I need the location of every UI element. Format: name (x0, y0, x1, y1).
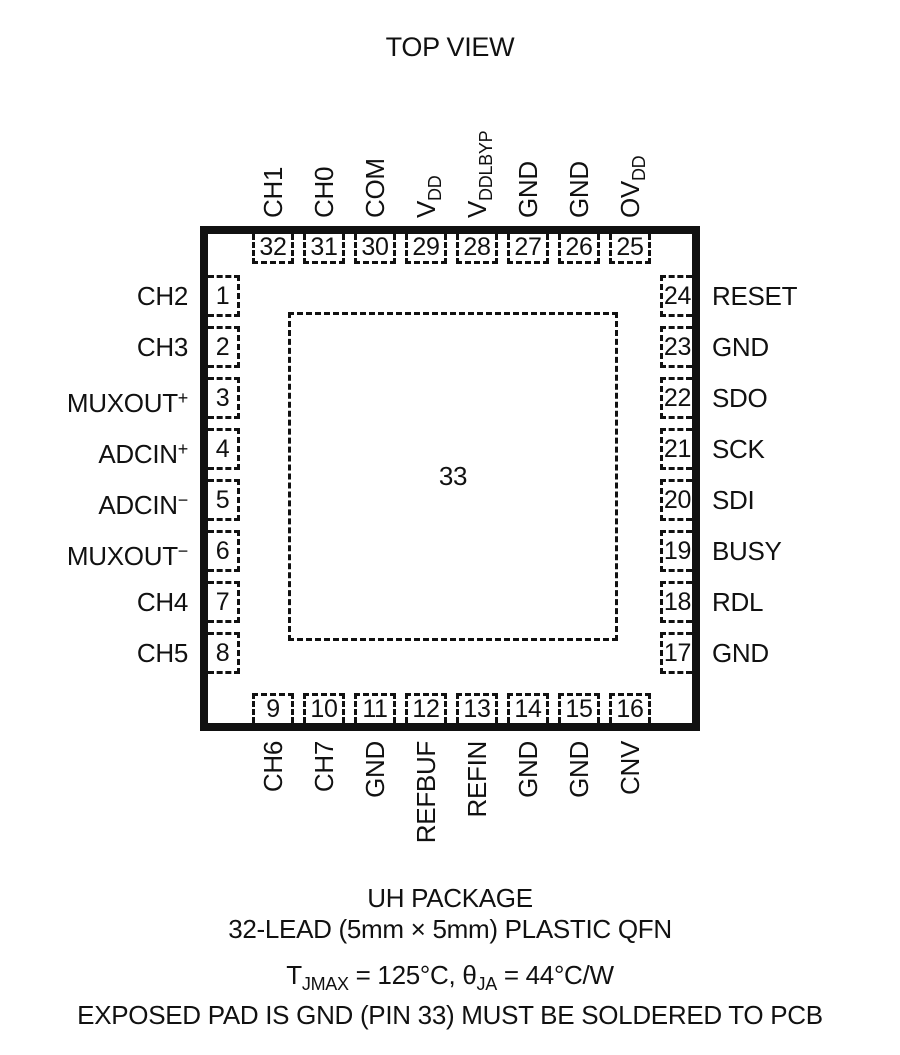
pin-label-text: RDL (712, 587, 763, 617)
pin-19-label: BUSY (712, 538, 782, 564)
pin-number: 3 (216, 386, 230, 411)
pin-7-pad: 7 (208, 581, 240, 623)
pin-7-label: CH4 (137, 589, 188, 615)
pin-15-label: GND (564, 741, 594, 891)
pin-9-label: CH6 (258, 741, 288, 891)
qfn-package-outline: 33 3231302928272625910111213141516123456… (200, 226, 700, 731)
pin-label-text: GND (513, 741, 543, 798)
pin-8-pad: 8 (208, 632, 240, 674)
thermal-text: = 125°C, θ (349, 960, 477, 990)
pin-6-pad: 6 (208, 530, 240, 572)
pin-number: 25 (616, 235, 643, 260)
pin-number: 29 (412, 235, 439, 260)
pin-number: 12 (412, 697, 439, 722)
pin-32-label: CH1 (258, 68, 288, 218)
pin-label-text: CH4 (137, 587, 188, 617)
pin-number: 14 (514, 697, 541, 722)
pin-23-pad: 23 (660, 326, 692, 368)
pin-label-text: ADCIN (98, 439, 177, 469)
exposed-pad-number: 33 (439, 461, 467, 492)
pin-label-text: V (462, 201, 492, 218)
pin-25-label: OVDD (615, 68, 645, 218)
pin-label-subscript: DD (425, 176, 445, 201)
pin-number: 24 (664, 284, 691, 309)
pin-1-label: CH2 (137, 283, 188, 309)
pin-label-subscript: DDLBYP (476, 131, 496, 201)
pin-10-label: CH7 (309, 741, 339, 891)
pin-11-label: GND (360, 741, 390, 891)
qfn-pinout-figure: TOP VIEW 33 3231302928272625910111213141… (0, 0, 900, 1055)
pin-17-label: GND (712, 640, 769, 666)
pin-3-pad: 3 (208, 377, 240, 419)
pin-label-text: BUSY (712, 536, 782, 566)
thermal-specs: TJMAX = 125°C, θJA = 44°C/W (0, 960, 900, 1000)
pin-label-subscript: DD (629, 156, 649, 181)
pin-10-pad: 10 (303, 693, 345, 723)
pin-18-pad: 18 (660, 581, 692, 623)
pin-label-text: REFBUF (411, 741, 441, 843)
pin-number: 16 (616, 697, 643, 722)
pin-9-pad: 9 (252, 693, 294, 723)
pin-label-text: V (411, 201, 441, 218)
pin-22-pad: 22 (660, 377, 692, 419)
pin-number: 32 (259, 235, 286, 260)
pin-label-text: CH3 (137, 332, 188, 362)
pin-number: 1 (216, 284, 230, 309)
pin-label-text: GND (712, 638, 769, 668)
pin-label-text: REFIN (462, 741, 492, 818)
pin-21-label: SCK (712, 436, 765, 462)
pin-4-label: ADCIN+ (98, 436, 188, 467)
pin-30-pad: 30 (354, 234, 396, 264)
pin-number: 7 (216, 590, 230, 615)
pin-number: 8 (216, 641, 230, 666)
pin-label-text: GND (360, 741, 390, 798)
pin-28-label: VDDLBYP (462, 68, 492, 218)
pin-2-label: CH3 (137, 334, 188, 360)
pin-number: 30 (361, 235, 388, 260)
exposed-pad: 33 (288, 312, 618, 641)
pin-2-pad: 2 (208, 326, 240, 368)
pin-4-pad: 4 (208, 428, 240, 470)
pin-24-label: RESET (712, 283, 797, 309)
pin-19-pad: 19 (660, 530, 692, 572)
pin-25-pad: 25 (609, 234, 651, 264)
pin-number: 9 (266, 697, 280, 722)
pin-5-pad: 5 (208, 479, 240, 521)
pin-number: 17 (664, 641, 691, 666)
pin-label-text: SDI (712, 485, 754, 515)
pin-number: 13 (463, 697, 490, 722)
pin-number: 26 (565, 235, 592, 260)
pin-13-label: REFIN (462, 741, 492, 891)
pin-number: 11 (362, 697, 387, 722)
pin-18-label: RDL (712, 589, 763, 615)
pin-6-label: MUXOUT− (67, 538, 188, 569)
pin-31-label: CH0 (309, 68, 339, 218)
pin-29-pad: 29 (405, 234, 447, 264)
pin-number: 15 (565, 697, 592, 722)
pin-number: 10 (310, 697, 337, 722)
pin-16-pad: 16 (609, 693, 651, 723)
pin-label-superscript: + (178, 439, 188, 459)
pin-5-label: ADCIN− (98, 487, 188, 518)
exposed-pad-note: EXPOSED PAD IS GND (PIN 33) MUST BE SOLD… (0, 1000, 900, 1031)
pin-16-label: CNV (615, 741, 645, 891)
pin-29-label: VDD (411, 68, 441, 218)
pin-number: 19 (664, 539, 691, 564)
pin-number: 23 (664, 335, 691, 360)
pin-label-text: CH6 (258, 741, 288, 792)
pin-label-text: CH2 (137, 281, 188, 311)
pin-number: 21 (664, 437, 691, 462)
pin-13-pad: 13 (456, 693, 498, 723)
pin-8-label: CH5 (137, 640, 188, 666)
pin-27-label: GND (513, 68, 543, 218)
pin-label-text: GND (564, 161, 594, 218)
pin-label-text: CH0 (309, 167, 339, 218)
pin-31-pad: 31 (303, 234, 345, 264)
pin-number: 27 (514, 235, 541, 260)
pin-number: 31 (310, 235, 337, 260)
pin-23-label: GND (712, 334, 769, 360)
pin-15-pad: 15 (558, 693, 600, 723)
pin-label-text: MUXOUT (67, 388, 178, 418)
pin-label-superscript: + (178, 388, 188, 408)
pin-14-label: GND (513, 741, 543, 891)
package-caption: UH PACKAGE 32-LEAD (5mm × 5mm) PLASTIC Q… (0, 883, 900, 945)
pin-number: 4 (216, 437, 230, 462)
pin-label-text: GND (712, 332, 769, 362)
pin-label-superscript: − (178, 541, 188, 561)
pin-label-text: OV (615, 181, 645, 218)
pin-14-pad: 14 (507, 693, 549, 723)
package-name: UH PACKAGE (0, 883, 900, 914)
pin-label-text: SDO (712, 383, 767, 413)
pin-label-text: CH1 (258, 167, 288, 218)
pin-28-pad: 28 (456, 234, 498, 264)
thermal-subscript: JMAX (302, 974, 349, 994)
thermal-text: T (286, 960, 302, 990)
pin-24-pad: 24 (660, 275, 692, 317)
thermal-caption: TJMAX = 125°C, θJA = 44°C/W EXPOSED PAD … (0, 960, 900, 1031)
pin-number: 5 (216, 488, 230, 513)
pin-label-text: CH7 (309, 741, 339, 792)
pin-21-pad: 21 (660, 428, 692, 470)
pin-label-text: CH5 (137, 638, 188, 668)
pin-label-text: GND (513, 161, 543, 218)
pin-number: 28 (463, 235, 490, 260)
pin-22-label: SDO (712, 385, 767, 411)
pin-1-pad: 1 (208, 275, 240, 317)
pin-11-pad: 11 (354, 693, 396, 723)
pin-number: 20 (664, 488, 691, 513)
pin-label-text: ADCIN (98, 490, 177, 520)
pin-label-text: CNV (615, 741, 645, 795)
pin-26-pad: 26 (558, 234, 600, 264)
pin-30-label: COM (360, 68, 390, 218)
pin-label-text: MUXOUT (67, 541, 178, 571)
thermal-text: = 44°C/W (497, 960, 614, 990)
pin-17-pad: 17 (660, 632, 692, 674)
pin-12-label: REFBUF (411, 741, 441, 891)
pin-27-pad: 27 (507, 234, 549, 264)
pin-3-label: MUXOUT+ (67, 385, 188, 416)
pin-number: 22 (664, 386, 691, 411)
pin-label-text: COM (360, 158, 390, 218)
figure-title: TOP VIEW (0, 32, 900, 63)
pin-number: 18 (664, 590, 691, 615)
pin-number: 6 (216, 539, 230, 564)
pin-label-text: RESET (712, 281, 797, 311)
pin-20-pad: 20 (660, 479, 692, 521)
pin-label-text: SCK (712, 434, 765, 464)
pin-32-pad: 32 (252, 234, 294, 264)
package-description: 32-LEAD (5mm × 5mm) PLASTIC QFN (0, 914, 900, 945)
pin-label-superscript: − (178, 490, 188, 510)
pin-label-text: GND (564, 741, 594, 798)
pin-20-label: SDI (712, 487, 754, 513)
thermal-subscript: JA (477, 974, 497, 994)
pin-26-label: GND (564, 68, 594, 218)
pin-number: 2 (216, 335, 230, 360)
pin-12-pad: 12 (405, 693, 447, 723)
